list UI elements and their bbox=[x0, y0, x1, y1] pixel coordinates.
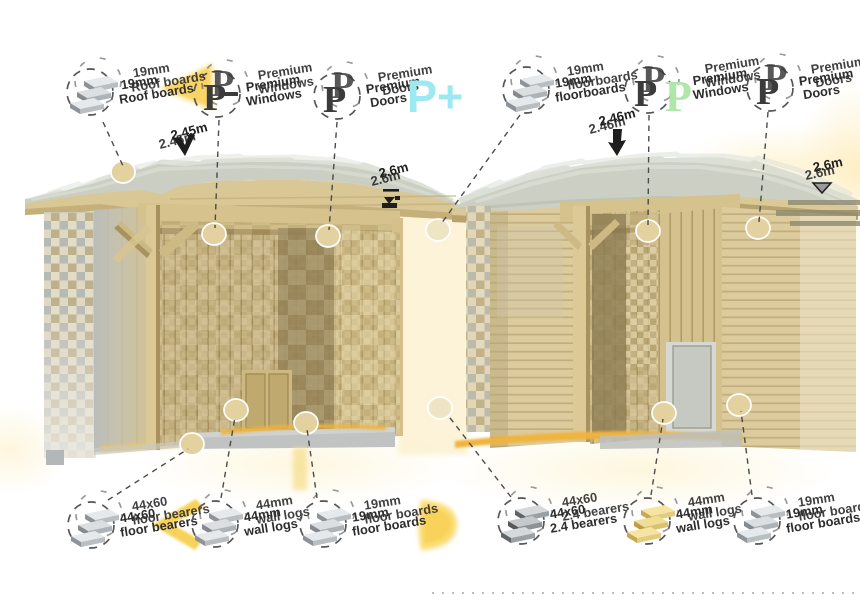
svg-text:P: P bbox=[665, 72, 692, 121]
svg-text:P: P bbox=[211, 63, 234, 105]
svg-text:P+: P+ bbox=[407, 71, 463, 122]
svg-text:P: P bbox=[331, 65, 354, 107]
svg-text:P: P bbox=[764, 57, 787, 99]
svg-text:P: P bbox=[642, 59, 665, 101]
